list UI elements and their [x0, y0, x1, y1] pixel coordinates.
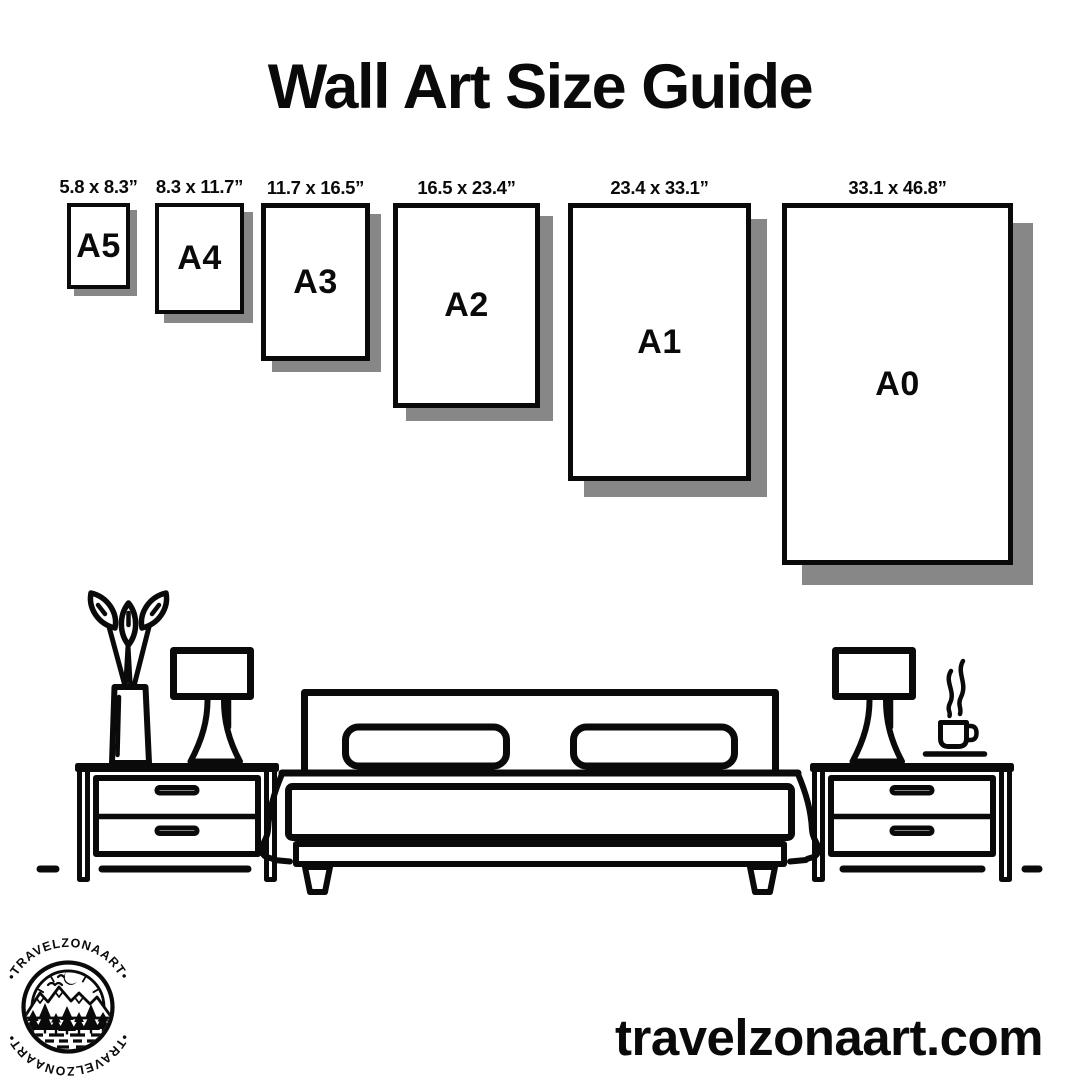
poster: Wall Art Size Guide 5.8 x 8.3” A5 8.3 x … — [0, 0, 1080, 1080]
nightstand-left-icon — [75, 763, 279, 880]
nightstand-right-icon — [810, 763, 1014, 880]
vase-with-flowers-icon — [90, 593, 166, 763]
size-name-label: A2 — [444, 286, 488, 325]
bedroom-illustration — [30, 585, 1050, 900]
size-frame-a3: 11.7 x 16.5” A3 — [261, 203, 370, 361]
bed-leg-right — [750, 867, 775, 892]
coffee-cup-icon — [926, 661, 985, 754]
cup-body — [941, 723, 967, 747]
website-url: travelzonaart.com — [615, 1008, 1043, 1067]
size-frame-a5: 5.8 x 8.3” A5 — [67, 203, 130, 289]
size-frame-a1: 23.4 x 33.1” A1 — [568, 203, 751, 481]
steam-icon — [949, 671, 952, 716]
size-frame-a4: 8.3 x 11.7” A4 — [155, 203, 244, 314]
mattress — [289, 787, 792, 838]
size-dimensions-label: 11.7 x 16.5” — [267, 177, 364, 199]
size-dimensions-label: 8.3 x 11.7” — [156, 176, 243, 198]
table-lamp-left-icon — [174, 651, 251, 762]
size-frame-a2: 16.5 x 23.4” A2 — [393, 203, 540, 408]
size-name-label: A3 — [293, 263, 337, 302]
size-name-label: A5 — [76, 227, 120, 266]
size-name-label: A4 — [177, 239, 221, 278]
size-dimensions-label: 33.1 x 46.8” — [848, 177, 946, 199]
size-dimensions-label: 16.5 x 23.4” — [417, 177, 515, 199]
bed-leg-left — [305, 867, 330, 892]
page-title: Wall Art Size Guide — [0, 56, 1080, 119]
brand-logo: •TRAVELZONAART• •TRAVELZONAART• — [0, 925, 160, 1080]
size-name-label: A0 — [875, 365, 919, 404]
double-bed-icon — [262, 693, 818, 893]
pillow-right-icon — [574, 727, 735, 766]
size-frame-a0: 33.1 x 46.8” A0 — [782, 203, 1013, 565]
pillow-left-icon — [346, 727, 507, 766]
size-dimensions-label: 23.4 x 33.1” — [610, 177, 708, 199]
size-name-label: A1 — [637, 323, 681, 362]
size-dimensions-label: 5.8 x 8.3” — [59, 176, 137, 198]
bed-base — [296, 844, 784, 864]
steam-icon — [959, 661, 963, 714]
table-lamp-right-icon — [836, 651, 913, 762]
